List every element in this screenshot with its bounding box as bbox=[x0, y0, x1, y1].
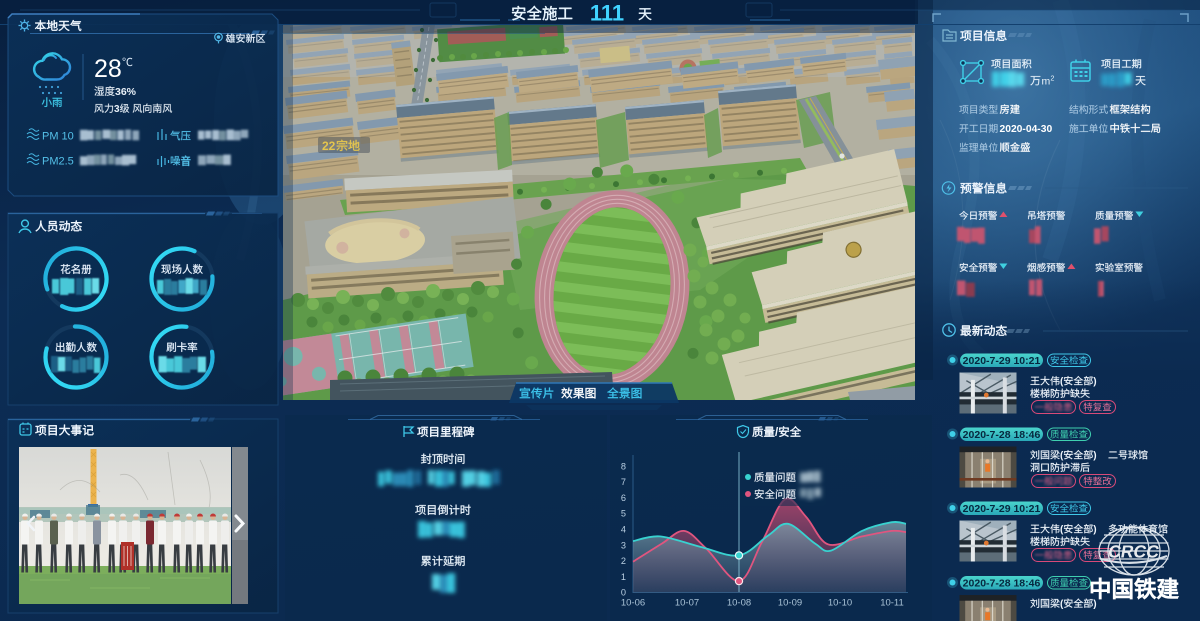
svg-text:2020-7-29 10:21: 2020-7-29 10:21 bbox=[963, 355, 1041, 367]
svg-text:2020-7-28 18:46: 2020-7-28 18:46 bbox=[963, 429, 1041, 441]
svg-text:音: 音 bbox=[181, 155, 192, 168]
svg-text:10-10: 10-10 bbox=[828, 598, 852, 609]
svg-text:): ) bbox=[1093, 599, 1096, 610]
svg-text:111: 111 bbox=[590, 1, 624, 26]
svg-text:10-09: 10-09 bbox=[778, 598, 802, 609]
svg-text:5: 5 bbox=[621, 509, 626, 519]
svg-text:): ) bbox=[1093, 451, 1096, 462]
svg-text:2: 2 bbox=[621, 556, 626, 566]
svg-text:7: 7 bbox=[621, 477, 626, 487]
svg-text:2: 2 bbox=[1051, 76, 1055, 83]
svg-text:PM 10: PM 10 bbox=[42, 131, 74, 143]
svg-text:4: 4 bbox=[621, 525, 626, 535]
svg-text:8: 8 bbox=[621, 461, 626, 471]
svg-text:1: 1 bbox=[621, 572, 626, 582]
svg-text:6: 6 bbox=[621, 493, 626, 503]
svg-text:): ) bbox=[1093, 377, 1096, 388]
svg-text:2020-7-28 18:46: 2020-7-28 18:46 bbox=[963, 578, 1041, 590]
svg-text:3: 3 bbox=[114, 104, 120, 115]
svg-text:): ) bbox=[1093, 525, 1096, 536]
svg-text:2020-04-30: 2020-04-30 bbox=[1000, 124, 1053, 135]
svg-text:36%: 36% bbox=[115, 86, 137, 98]
svg-text:10-11: 10-11 bbox=[880, 598, 904, 609]
svg-text:28: 28 bbox=[94, 55, 122, 83]
svg-text:m: m bbox=[1042, 76, 1051, 88]
svg-text:10-08: 10-08 bbox=[727, 598, 751, 609]
svg-text:PM2.5: PM2.5 bbox=[42, 156, 74, 168]
svg-text:10-07: 10-07 bbox=[675, 598, 699, 609]
svg-text:0: 0 bbox=[621, 588, 626, 598]
svg-text:CRCC: CRCC bbox=[1107, 542, 1161, 562]
svg-text:10-06: 10-06 bbox=[621, 598, 645, 609]
svg-text:2020-7-29 10:21: 2020-7-29 10:21 bbox=[963, 503, 1041, 515]
svg-text:3: 3 bbox=[621, 540, 626, 550]
